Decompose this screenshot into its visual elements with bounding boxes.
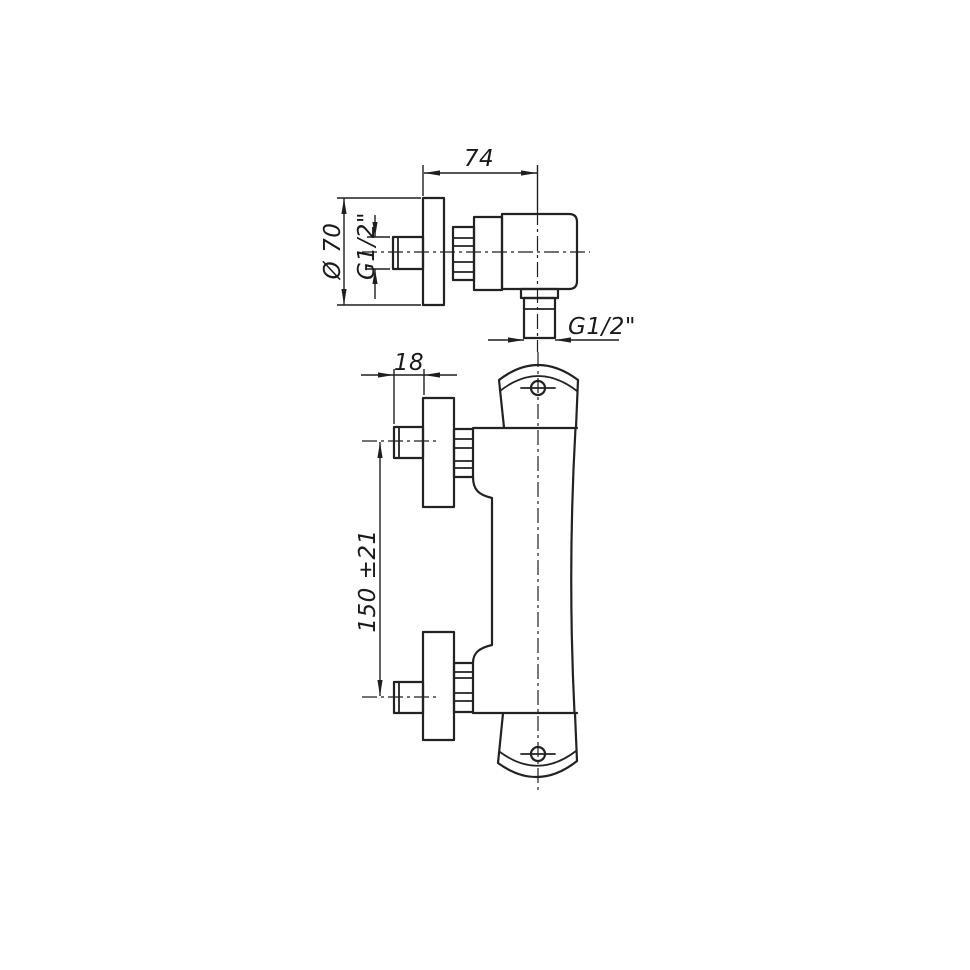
dim-label-center-distance: 150 ±21 (355, 529, 381, 632)
dimension-outlet-thread: G1/2" (488, 314, 636, 343)
dimension-union-depth: 18 (361, 350, 457, 424)
dim-label-flange-diameter: Ø 70 (320, 223, 346, 281)
body-left-profile (473, 477, 492, 663)
arrowhead (341, 198, 346, 214)
lower-hex-nut (454, 663, 473, 712)
body-right-edge (571, 428, 575, 713)
dimension-projection-width: 74 (423, 146, 537, 196)
outlet-neck (524, 298, 555, 338)
dimension-center-distance: 150 ±21 (355, 442, 383, 696)
lower-wall-flange (423, 632, 454, 740)
dim-label-union-depth: 18 (394, 350, 424, 376)
arrowhead (508, 337, 524, 342)
upper-wall-flange (423, 398, 454, 507)
arrowhead (424, 170, 440, 175)
arrowhead (377, 680, 382, 696)
top-view (362, 165, 590, 352)
dim-label-outlet-thread: G1/2" (568, 314, 636, 340)
arrowhead (378, 372, 394, 377)
dim-label-top-width: 74 (464, 146, 494, 172)
outlet-collar (521, 289, 558, 298)
arrowhead (341, 289, 346, 305)
arrowhead (377, 442, 382, 458)
connection-boss (474, 217, 502, 290)
arrowhead (521, 170, 537, 175)
dimensions: 74 Ø 70 G1/2" G1/2" (320, 146, 636, 696)
dim-label-inlet-thread: G1/2" (354, 212, 380, 280)
drawing-canvas: 74 Ø 70 G1/2" G1/2" (0, 0, 970, 970)
arrowhead (424, 372, 440, 377)
upper-hex-nut (454, 429, 473, 477)
dimension-inlet-thread: G1/2" (354, 212, 390, 299)
shower-mixer-technical-drawing: 74 Ø 70 G1/2" G1/2" (0, 0, 970, 970)
